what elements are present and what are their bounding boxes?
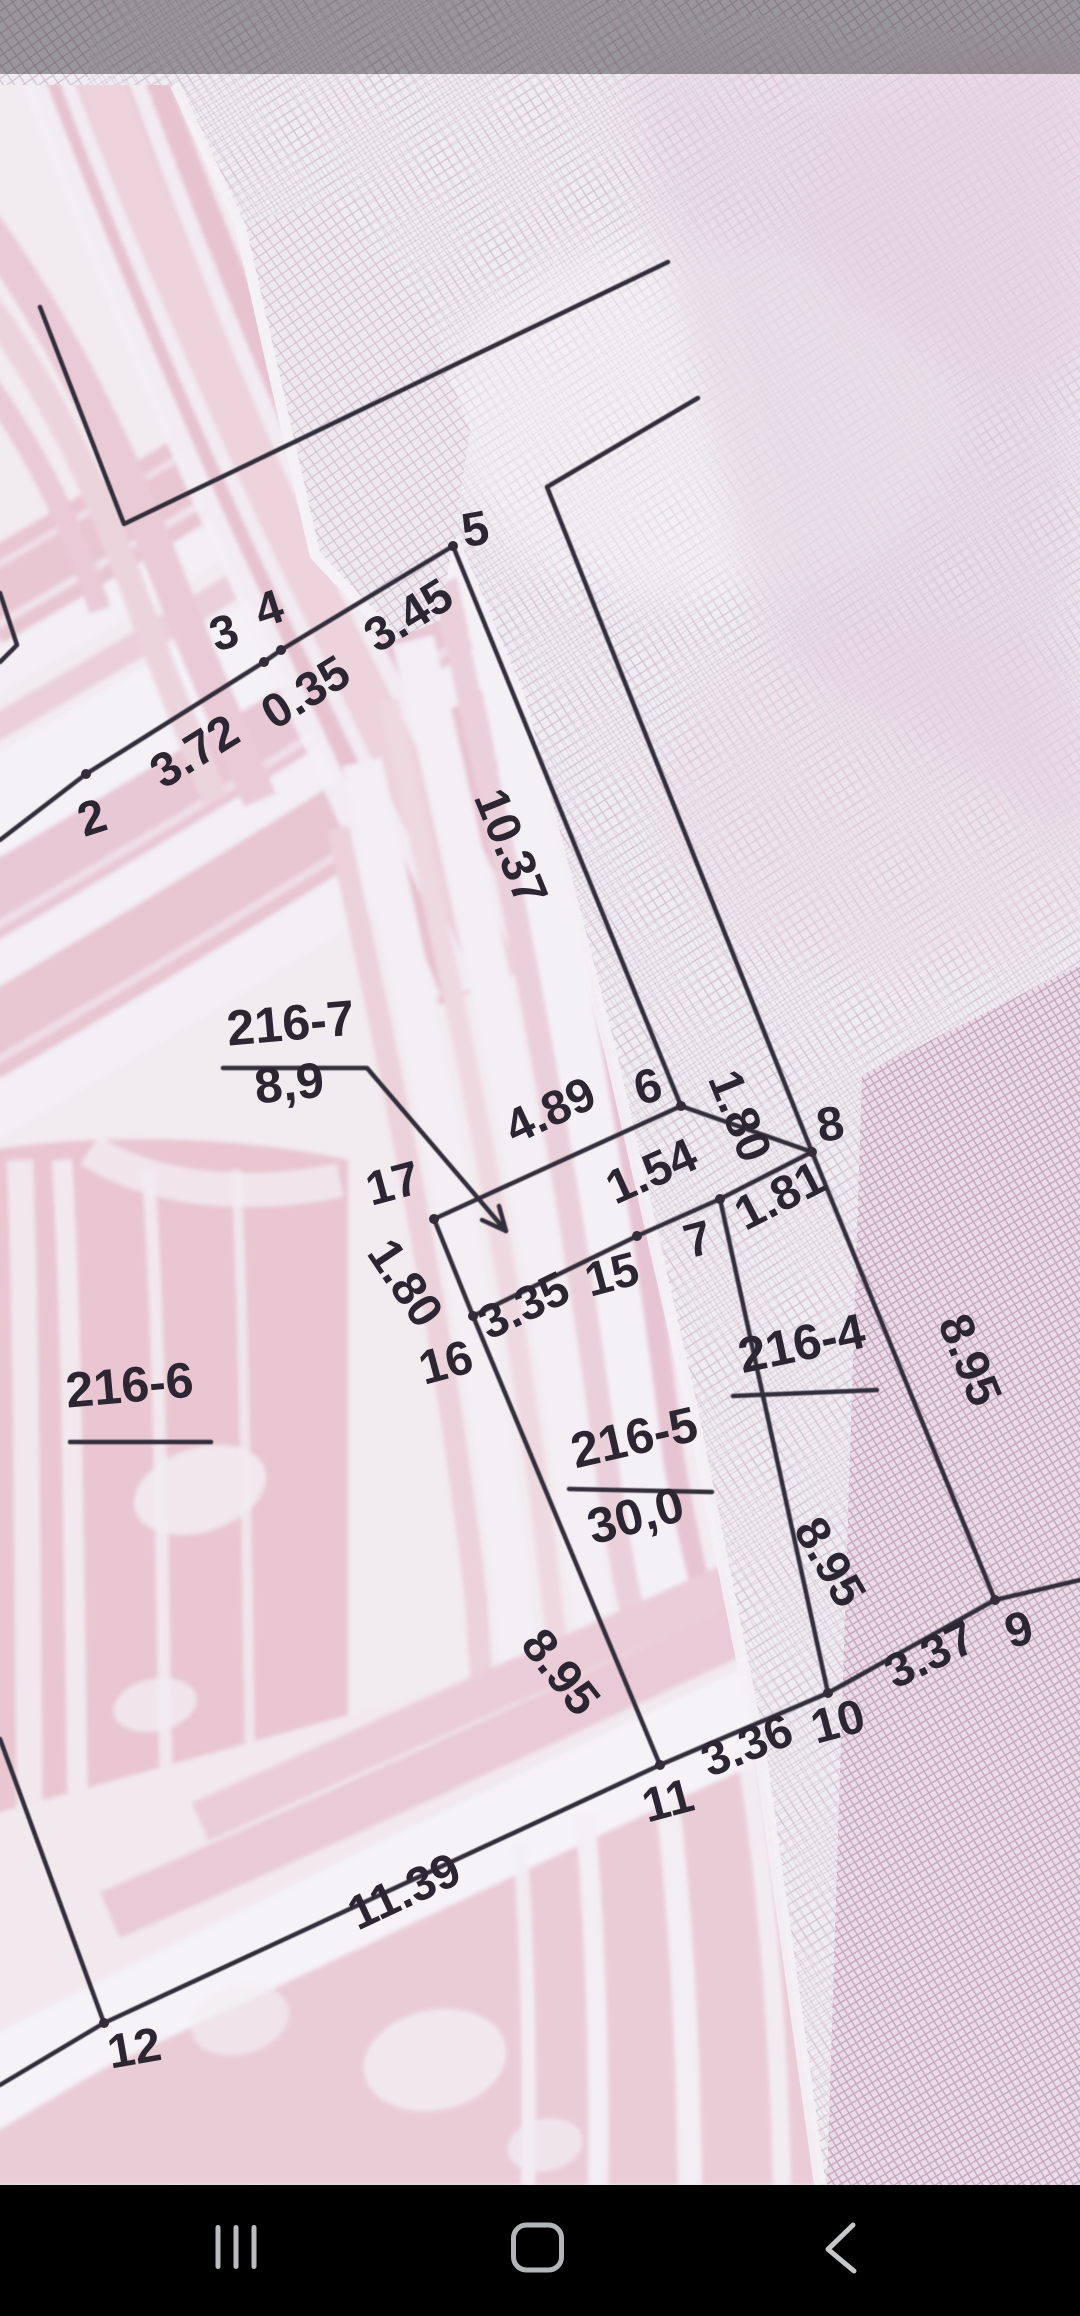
svg-text:12: 12 [103, 2018, 165, 2079]
svg-text:216-6: 216-6 [63, 1352, 195, 1419]
svg-text:216-7: 216-7 [224, 990, 356, 1057]
svg-text:8,9: 8,9 [252, 1052, 327, 1115]
